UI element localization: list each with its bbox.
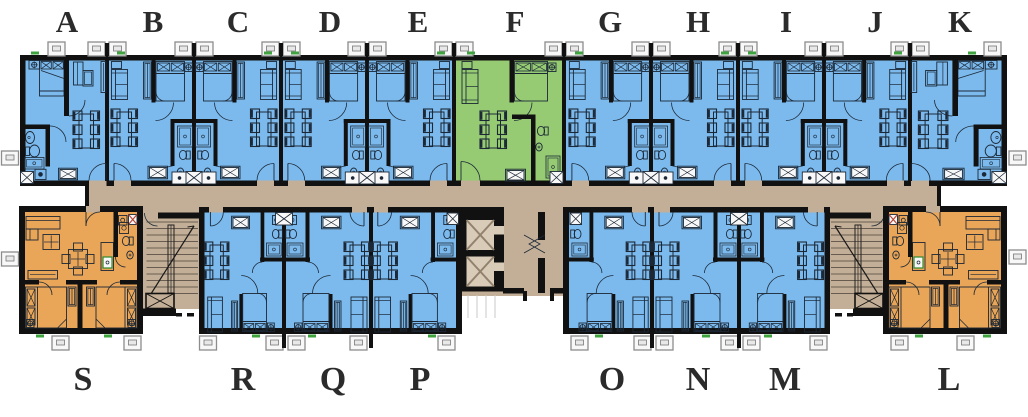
svg-text:K: K bbox=[948, 4, 972, 39]
svg-text:I: I bbox=[780, 4, 792, 39]
svg-text:O: O bbox=[599, 361, 625, 398]
svg-text:D: D bbox=[319, 4, 341, 39]
svg-text:E: E bbox=[408, 4, 429, 39]
svg-text:G: G bbox=[598, 4, 622, 39]
svg-text:M: M bbox=[769, 361, 801, 398]
svg-text:S: S bbox=[74, 361, 93, 398]
svg-text:H: H bbox=[686, 4, 710, 39]
svg-text:B: B bbox=[143, 4, 164, 39]
svg-text:A: A bbox=[56, 4, 79, 39]
svg-text:N: N bbox=[686, 361, 711, 398]
svg-text:J: J bbox=[867, 4, 883, 39]
svg-text:C: C bbox=[227, 4, 249, 39]
svg-text:P: P bbox=[410, 361, 431, 398]
svg-text:R: R bbox=[231, 361, 256, 398]
svg-text:Q: Q bbox=[320, 361, 346, 398]
svg-text:F: F bbox=[506, 4, 525, 39]
svg-text:L: L bbox=[938, 361, 961, 398]
